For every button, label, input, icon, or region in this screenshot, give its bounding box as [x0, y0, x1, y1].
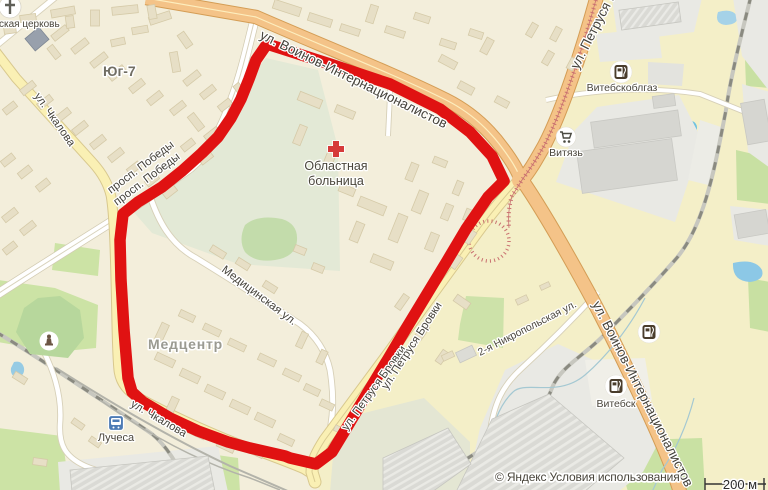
svg-text:Лучеса: Лучеса: [98, 432, 135, 444]
svg-text:200 м: 200 м: [723, 477, 757, 490]
svg-text:ская церковь: ская церковь: [0, 19, 60, 30]
svg-text:больница: больница: [308, 174, 364, 188]
svg-text:Юг-7: Юг-7: [103, 63, 136, 79]
svg-text:Витебскоблгаз: Витебскоблгаз: [587, 82, 658, 94]
svg-text:Областная: Областная: [304, 159, 367, 173]
svg-text:Медцентр: Медцентр: [148, 336, 223, 352]
svg-text:© Яндекс Условия использования: © Яндекс Условия использования: [495, 470, 680, 484]
svg-text:Витебск: Витебск: [596, 398, 635, 410]
svg-text:Витязь: Витязь: [549, 147, 583, 159]
